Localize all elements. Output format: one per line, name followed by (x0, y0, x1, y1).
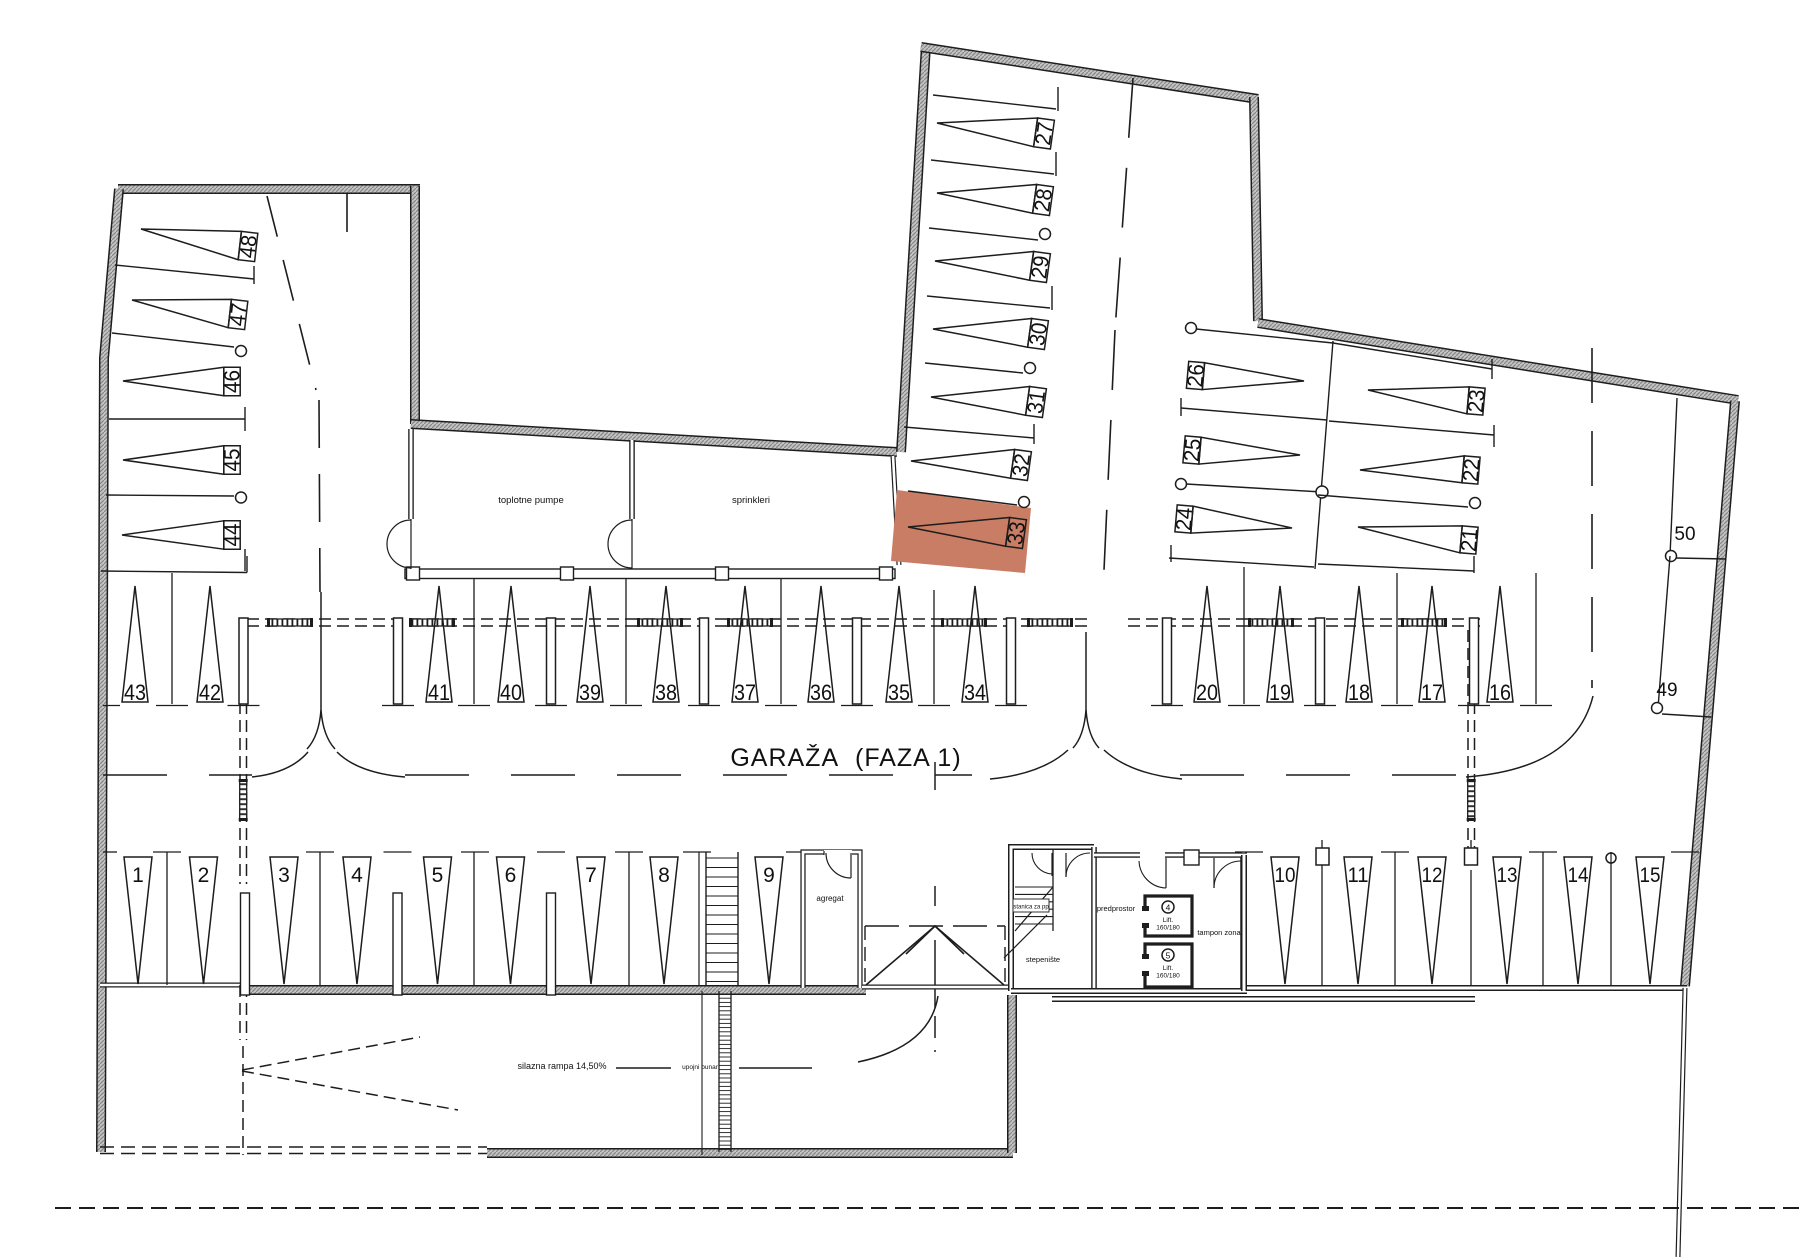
svg-text:19: 19 (1269, 680, 1291, 705)
svg-text:2: 2 (198, 864, 210, 887)
svg-text:160/180: 160/180 (1156, 973, 1180, 980)
svg-text:42: 42 (199, 680, 221, 705)
svg-text:32: 32 (1007, 452, 1035, 478)
svg-text:21: 21 (1456, 527, 1483, 552)
svg-text:44: 44 (220, 524, 245, 547)
svg-text:stepenište: stepenište (1026, 955, 1060, 964)
svg-text:3: 3 (278, 864, 290, 887)
svg-text:10: 10 (1275, 864, 1296, 887)
svg-text:11: 11 (1348, 864, 1369, 887)
svg-text:40: 40 (500, 680, 522, 705)
svg-text:46: 46 (220, 370, 245, 393)
svg-text:silazna rampa 14,50%: silazna rampa 14,50% (517, 1061, 606, 1071)
svg-text:predprostor: predprostor (1097, 904, 1136, 913)
svg-text:15: 15 (1640, 864, 1661, 887)
svg-text:49: 49 (1656, 680, 1677, 701)
svg-text:tampon zona: tampon zona (1197, 928, 1241, 937)
svg-text:50: 50 (1674, 524, 1695, 545)
svg-text:48: 48 (234, 234, 261, 260)
svg-text:17: 17 (1421, 680, 1443, 705)
svg-text:25: 25 (1179, 437, 1206, 462)
svg-text:30: 30 (1024, 321, 1052, 347)
svg-text:38: 38 (655, 680, 677, 705)
svg-text:stanica za pp: stanica za pp (1013, 905, 1049, 911)
svg-text:13: 13 (1497, 864, 1518, 887)
svg-text:7: 7 (585, 864, 597, 887)
svg-text:16: 16 (1489, 680, 1511, 705)
svg-text:12: 12 (1422, 864, 1443, 887)
svg-text:35: 35 (888, 680, 910, 705)
svg-text:24: 24 (1171, 506, 1198, 531)
svg-text:Lift.: Lift. (1163, 965, 1174, 972)
svg-text:37: 37 (734, 680, 756, 705)
svg-text:agregat: agregat (816, 894, 844, 903)
svg-text:4: 4 (351, 864, 363, 887)
svg-text:5: 5 (432, 864, 444, 887)
svg-text:6: 6 (505, 864, 517, 887)
svg-text:1: 1 (132, 864, 144, 887)
svg-text:Lift.: Lift. (1163, 917, 1174, 924)
svg-text:33: 33 (1002, 520, 1030, 546)
svg-text:sprinkleri: sprinkleri (732, 495, 770, 506)
svg-text:34: 34 (964, 680, 986, 705)
svg-text:18: 18 (1348, 680, 1370, 705)
svg-text:28: 28 (1029, 187, 1057, 213)
svg-text:5: 5 (1166, 951, 1171, 961)
svg-text:14: 14 (1568, 864, 1589, 887)
svg-text:39: 39 (579, 680, 601, 705)
svg-text:45: 45 (220, 449, 245, 472)
svg-text:41: 41 (428, 680, 450, 705)
svg-text:36: 36 (810, 680, 832, 705)
svg-text:160/180: 160/180 (1156, 925, 1180, 932)
svg-text:43: 43 (124, 680, 146, 705)
svg-text:26: 26 (1182, 363, 1209, 388)
svg-text:27: 27 (1030, 120, 1058, 146)
svg-text:GARAŽA (FAZA 1): GARAŽA (FAZA 1) (730, 743, 961, 772)
svg-text:23: 23 (1463, 388, 1490, 413)
svg-text:toplotne pumpe: toplotne pumpe (498, 495, 564, 506)
svg-text:22: 22 (1458, 457, 1485, 482)
svg-text:47: 47 (224, 302, 251, 328)
svg-text:upojni bunar: upojni bunar (682, 1064, 719, 1071)
svg-text:20: 20 (1196, 680, 1218, 705)
svg-text:29: 29 (1026, 254, 1054, 280)
svg-text:31: 31 (1022, 389, 1050, 415)
svg-text:4: 4 (1166, 903, 1171, 913)
svg-text:9: 9 (763, 864, 775, 887)
svg-text:8: 8 (658, 864, 670, 887)
